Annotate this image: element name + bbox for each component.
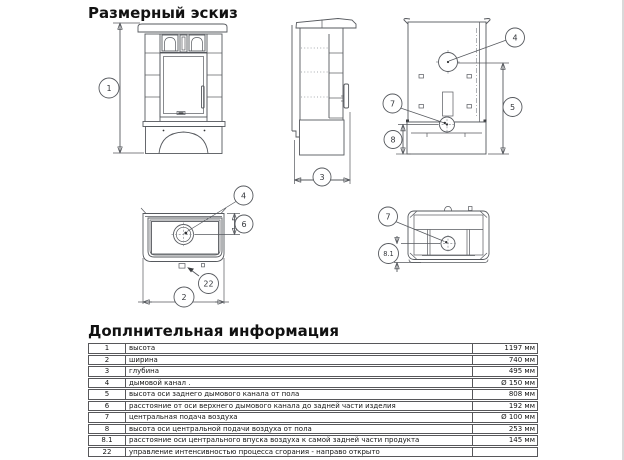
row-number: 5 [89, 390, 126, 399]
combustion-control [179, 264, 185, 269]
svg-text:7: 7 [390, 100, 395, 109]
svg-text:8.1: 8.1 [383, 250, 394, 258]
table-row: 5 высота оси заднего дымового канала от … [88, 389, 538, 400]
row-description: глубина [126, 367, 472, 376]
row-number: 1 [89, 344, 126, 353]
svg-text:5: 5 [510, 103, 515, 112]
table-row: 8.1 расстояние оси центрального впуска в… [88, 435, 538, 446]
row-value: 740 мм [472, 356, 537, 365]
row-description: управление интенсивностью процесса сгора… [126, 448, 472, 457]
svg-text:4: 4 [512, 34, 517, 43]
side-view: 3 [292, 19, 356, 187]
row-description: дымовой канал . [126, 379, 472, 388]
svg-text:6: 6 [241, 220, 246, 229]
row-number: 8 [89, 425, 126, 434]
row-description: высота оси заднего дымового канала от по… [126, 390, 472, 399]
row-description: центральная подача воздуха [126, 413, 472, 422]
row-description: расстояние оси центрального впуска возду… [126, 436, 472, 445]
dimensional-sketch: 1 3 [0, 0, 624, 320]
back-view: 4 5 7 8 [383, 19, 525, 155]
row-value: 1197 мм [472, 344, 537, 353]
row-number: 3 [89, 367, 126, 376]
table-row: 6 расстояние от оси верхнего дымового ка… [88, 401, 538, 412]
svg-text:8: 8 [390, 136, 395, 145]
info-table: 1 высота 1197 мм 2 ширина 740 мм 3 глуби… [88, 343, 538, 457]
svg-text:1: 1 [106, 84, 111, 93]
svg-text:3: 3 [319, 173, 324, 182]
section-title: Доплнительная информация [88, 322, 339, 340]
table-row: 2 ширина 740 мм [88, 355, 538, 366]
table-row: 4 дымовой канал . Ø 150 мм [88, 378, 538, 389]
bottom-view: 7 8.1 [379, 207, 490, 273]
side-handle [344, 84, 349, 108]
table-row: 7 центральная подача воздуха Ø 100 мм [88, 412, 538, 423]
table-row: 1 высота 1197 мм [88, 343, 538, 354]
table-row: 3 глубина 495 мм [88, 366, 538, 377]
front-view: 1 [99, 23, 227, 154]
row-description: высота [126, 344, 472, 353]
row-value: 495 мм [472, 367, 537, 376]
top-view: 4 6 22 2 [138, 186, 253, 307]
svg-text:7: 7 [385, 213, 390, 222]
row-value: 808 мм [472, 390, 537, 399]
row-value: 145 мм [472, 436, 537, 445]
row-number: 7 [89, 413, 126, 422]
row-value [472, 448, 537, 457]
svg-text:22: 22 [203, 280, 213, 289]
row-value: Ø 100 мм [472, 413, 537, 422]
row-value: 192 мм [472, 402, 537, 411]
row-number: 22 [89, 448, 126, 457]
svg-text:4: 4 [241, 192, 246, 201]
row-number: 8.1 [89, 436, 126, 445]
documentation-page: Размерный эскиз [0, 0, 624, 460]
row-number: 2 [89, 356, 126, 365]
row-description: ширина [126, 356, 472, 365]
row-value: 253 мм [472, 425, 537, 434]
row-description: высота оси центральной подачи воздуха от… [126, 425, 472, 434]
row-description: расстояние от оси верхнего дымового кана… [126, 402, 472, 411]
row-number: 4 [89, 379, 126, 388]
table-row: 8 высота оси центральной подачи воздуха … [88, 424, 538, 435]
table-row: 22 управление интенсивностью процесса сг… [88, 447, 538, 458]
row-value: Ø 150 мм [472, 379, 537, 388]
row-number: 6 [89, 402, 126, 411]
svg-text:2: 2 [181, 293, 186, 302]
